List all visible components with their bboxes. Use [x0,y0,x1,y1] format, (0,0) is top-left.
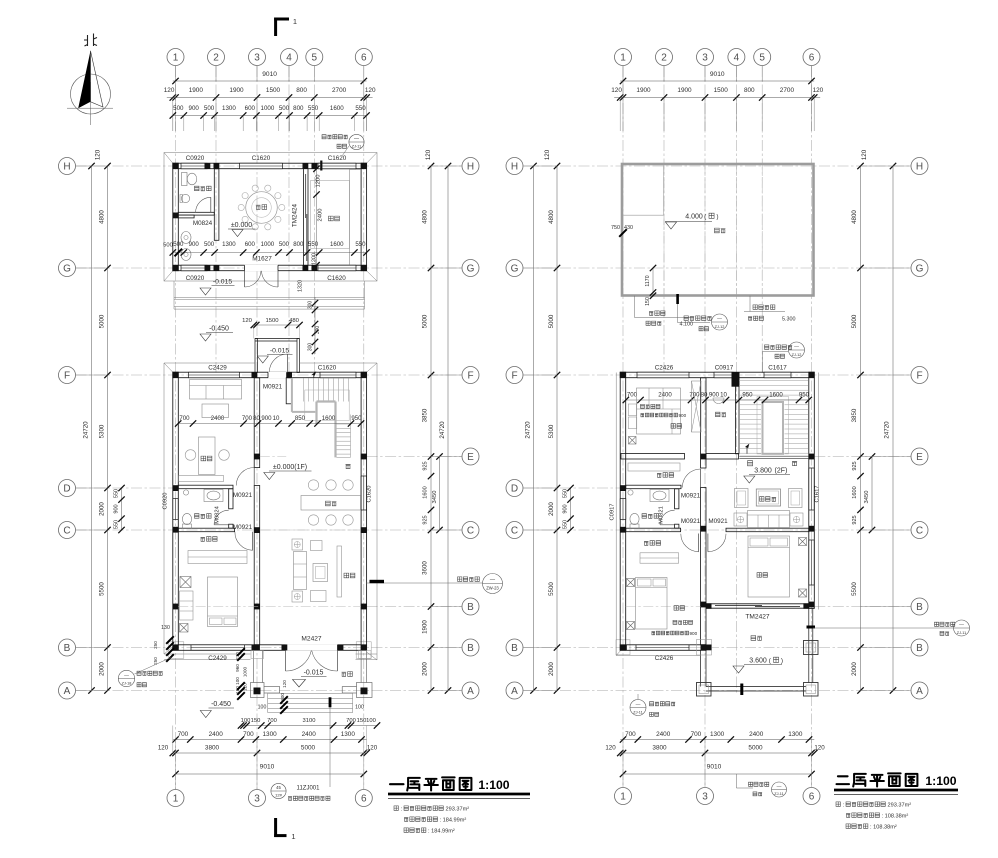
svg-text:6: 6 [361,793,367,804]
svg-text:—: — [777,785,782,790]
svg-text:: 108.38m²: : 108.38m² [870,825,897,831]
svg-text:2400: 2400 [211,415,225,422]
svg-text:B: B [467,602,474,613]
svg-text:1300: 1300 [341,731,356,738]
svg-text:B: B [467,643,474,654]
svg-text:2000: 2000 [422,662,429,676]
svg-text:3800: 3800 [205,745,220,752]
svg-text:M0824: M0824 [193,220,213,227]
svg-text:2400: 2400 [209,731,224,738]
svg-text:2000: 2000 [548,662,555,676]
svg-text:1300: 1300 [788,731,803,738]
svg-text:—: — [794,345,799,350]
svg-text:550: 550 [563,489,569,498]
svg-text:700: 700 [179,415,190,422]
svg-text:2000: 2000 [99,662,106,676]
svg-text:1600: 1600 [322,415,336,422]
svg-text:293.37m²: 293.37m² [446,807,470,813]
svg-text:1000: 1000 [261,241,275,248]
svg-text:700: 700 [691,731,702,738]
svg-text:24720: 24720 [525,421,532,439]
svg-text:: 184.99m²: : 184.99m² [428,829,455,835]
svg-text:1:100: 1:100 [478,778,509,792]
svg-text:ZJ-11: ZJ-11 [633,710,642,714]
svg-text:1000: 1000 [243,666,248,677]
svg-text:G: G [467,263,475,274]
svg-text:A: A [467,686,474,697]
svg-text:800: 800 [293,241,304,248]
svg-text:1900: 1900 [189,87,204,94]
svg-text:M2427: M2427 [301,636,321,643]
svg-text:M0921: M0921 [233,492,253,499]
svg-text:ZJ-12: ZJ-12 [715,325,725,329]
svg-text:120: 120 [861,149,868,160]
svg-text:ZJ-11: ZJ-11 [352,145,361,149]
svg-text:120: 120 [282,680,287,688]
svg-text:120: 120 [95,149,102,160]
svg-text:11ZJ001: 11ZJ001 [297,786,321,792]
svg-text:2400: 2400 [318,209,324,222]
svg-text:2400: 2400 [302,731,317,738]
svg-text:E: E [916,452,923,463]
svg-text:925: 925 [852,515,858,524]
svg-text:1: 1 [173,793,179,804]
svg-text:250: 250 [153,641,158,649]
svg-text:150: 150 [251,718,261,724]
svg-text:150: 150 [645,297,651,306]
svg-text:ZJ-11: ZJ-11 [774,792,783,796]
svg-text:C2429: C2429 [208,655,227,662]
svg-text:1900: 1900 [677,87,692,94]
svg-text:-0.450: -0.450 [211,701,231,708]
svg-text:C1620: C1620 [318,364,337,371]
svg-text:F: F [511,370,517,381]
svg-text:C1617: C1617 [768,364,787,371]
svg-text:3800: 3800 [652,745,667,752]
svg-text:9010: 9010 [260,764,275,771]
svg-text:120: 120 [164,87,175,94]
svg-text:2: 2 [661,52,667,63]
svg-text:ZW-23: ZW-23 [486,586,499,591]
svg-text:-0.015: -0.015 [270,348,289,355]
svg-text:550: 550 [308,105,319,112]
svg-text:3.600: 3.600 [749,658,767,665]
svg-text:C: C [511,525,518,536]
svg-text:9010: 9010 [262,71,277,78]
svg-text:1900: 1900 [422,620,429,634]
svg-text:—: — [959,623,964,628]
svg-text:ZJ-11: ZJ-11 [957,631,966,635]
svg-text:2: 2 [213,52,219,63]
svg-text:F: F [467,370,473,381]
svg-text:G: G [916,263,924,274]
svg-text:TM2427: TM2427 [745,614,770,621]
svg-text:5500: 5500 [851,582,858,596]
svg-text:700: 700 [625,731,636,738]
svg-text:M0921: M0921 [681,518,701,525]
svg-text:): ) [716,214,718,221]
svg-text:900: 900 [709,391,720,398]
svg-text:960: 960 [235,664,240,672]
svg-text:500: 500 [204,105,215,112]
svg-text:C1617: C1617 [815,485,821,502]
svg-text:—: — [717,317,722,322]
svg-text:12#: 12# [275,793,282,798]
svg-text:700: 700 [242,415,253,422]
svg-text:800: 800 [293,105,304,112]
svg-text:1500: 1500 [266,87,281,94]
svg-text:1600: 1600 [852,486,858,498]
svg-text:900: 900 [189,241,200,248]
svg-text:: 108.38m²: : 108.38m² [882,814,909,820]
svg-text:H: H [467,161,474,172]
svg-text:700: 700 [267,718,277,724]
svg-text:1: 1 [173,52,179,63]
svg-text:D: D [63,483,70,494]
svg-text:1:100: 1:100 [925,774,956,788]
svg-text:1300: 1300 [222,241,236,248]
svg-text:±0.000(1F): ±0.000(1F) [273,464,307,471]
svg-text:M0921: M0921 [708,518,728,525]
svg-text:): ) [781,658,783,665]
svg-text:550: 550 [563,520,569,529]
svg-text:E: E [467,452,474,463]
svg-text:M0921: M0921 [263,384,283,391]
svg-text:700: 700 [243,731,254,738]
svg-text:550: 550 [114,489,120,498]
svg-text:800: 800 [296,87,307,94]
svg-text:1900: 1900 [229,87,244,94]
svg-text:-0.015: -0.015 [213,279,232,286]
svg-text:550: 550 [355,105,366,112]
svg-text:1: 1 [620,52,626,63]
svg-text:100: 100 [366,718,376,724]
svg-text:850: 850 [295,415,306,422]
svg-text:C1620: C1620 [328,155,347,162]
svg-text:500: 500 [204,241,215,248]
svg-text:24720: 24720 [439,421,446,439]
svg-text:C: C [916,525,923,536]
svg-text:6: 6 [361,52,367,63]
svg-text:550: 550 [355,241,366,248]
svg-text:ZJ-18: ZJ-18 [122,681,132,685]
svg-text:1500: 1500 [265,318,279,324]
svg-text:900: 900 [261,415,272,422]
svg-text:700: 700 [627,391,638,398]
svg-text:C2426: C2426 [655,655,674,662]
svg-text:5500: 5500 [548,582,555,596]
svg-text:5300: 5300 [548,424,555,438]
svg-text:2000: 2000 [548,502,555,516]
svg-text:900: 900 [690,631,698,636]
svg-text:750: 750 [611,225,620,231]
svg-text:9010: 9010 [707,764,722,771]
svg-text:950: 950 [351,415,362,422]
svg-text:C1620: C1620 [327,275,346,282]
svg-text:C0917: C0917 [610,503,616,520]
svg-text:H: H [511,161,518,172]
svg-text:800: 800 [744,87,755,94]
svg-text:5000: 5000 [548,314,555,328]
svg-text:24720: 24720 [884,421,891,439]
svg-text:C1620: C1620 [252,155,271,162]
svg-text:3100: 3100 [303,718,316,724]
svg-text:G: G [63,263,71,274]
svg-text:900: 900 [189,105,200,112]
svg-text:—: — [636,703,641,708]
svg-text:M0921: M0921 [233,524,253,531]
svg-text:3: 3 [702,791,708,802]
svg-text:80: 80 [701,391,708,398]
svg-text:5300: 5300 [99,424,106,438]
svg-text:H: H [63,161,70,172]
svg-text:—: — [354,136,359,142]
svg-text:150: 150 [357,718,367,724]
svg-text:2400: 2400 [749,731,764,738]
svg-text:1320: 1320 [298,280,304,292]
svg-text:4800: 4800 [422,210,429,224]
svg-text:C0920: C0920 [186,155,205,162]
svg-text:130: 130 [161,625,170,631]
svg-text:1300: 1300 [262,731,277,738]
svg-text:—: — [490,577,496,583]
svg-text:D: D [511,483,518,494]
svg-text:C0917: C0917 [715,364,734,371]
svg-text:550: 550 [114,520,120,529]
svg-text:500: 500 [279,105,290,112]
svg-text:4: 4 [734,52,740,63]
svg-text:2000: 2000 [851,662,858,676]
svg-text:3: 3 [254,52,260,63]
svg-text:120: 120 [605,745,616,752]
svg-text:A: A [511,686,518,697]
svg-text:120: 120 [158,745,169,752]
svg-text:1: 1 [293,17,297,26]
svg-text:900: 900 [679,413,687,418]
svg-text:120: 120 [814,745,825,752]
svg-text:120: 120 [425,149,432,160]
svg-text:C0920: C0920 [163,492,169,509]
svg-text:C2429: C2429 [208,364,227,371]
svg-text:120: 120 [813,87,824,94]
svg-text:500: 500 [173,241,184,248]
svg-text:5000: 5000 [301,745,316,752]
svg-text:2400: 2400 [656,731,671,738]
svg-text:950: 950 [742,391,753,398]
svg-text:2700: 2700 [780,87,795,94]
svg-text:M1627: M1627 [252,256,272,263]
svg-text:900: 900 [563,504,569,513]
svg-text:2400: 2400 [658,391,672,398]
svg-text:±0.000: ±0.000 [231,222,252,229]
svg-text:C: C [63,525,70,536]
svg-text:TM2424: TM2424 [292,203,299,227]
svg-text:-0.450: -0.450 [209,326,229,333]
svg-text:3850: 3850 [422,408,429,422]
svg-text:B: B [916,602,923,613]
svg-text:925: 925 [852,461,858,470]
svg-text:2000: 2000 [99,502,106,516]
svg-text:700: 700 [178,731,189,738]
svg-text:1900: 1900 [636,87,651,94]
svg-text:3.800: 3.800 [754,468,772,475]
svg-text:1: 1 [291,832,295,841]
svg-text:500: 500 [279,241,290,248]
svg-text:3600: 3600 [422,561,429,575]
svg-text:4: 4 [286,52,292,63]
svg-text:C2426: C2426 [655,364,674,371]
svg-text:M0921: M0921 [681,493,701,500]
svg-text:5500: 5500 [99,582,106,596]
svg-text:5.300: 5.300 [782,317,796,323]
svg-text:: 184.99m²: : 184.99m² [440,818,467,824]
svg-text:6: 6 [809,52,815,63]
svg-text:300: 300 [315,326,321,335]
svg-text:C1620: C1620 [367,485,373,502]
svg-text:950: 950 [799,391,810,398]
svg-text:700: 700 [346,718,356,724]
svg-text:B: B [511,643,518,654]
svg-text:1500: 1500 [714,87,729,94]
svg-text:293.37m²: 293.37m² [888,803,912,809]
svg-text:500: 500 [173,105,184,112]
svg-text:4800: 4800 [851,210,858,224]
svg-text:550: 550 [308,241,319,248]
svg-text:4800: 4800 [99,210,106,224]
svg-text:—: — [124,673,129,678]
svg-text:120: 120 [544,149,551,160]
svg-text:9010: 9010 [710,71,725,78]
svg-text:B: B [64,643,71,654]
svg-text:120: 120 [367,745,378,752]
svg-text:5000: 5000 [748,745,763,752]
svg-text:5: 5 [759,52,765,63]
svg-text:M0821: M0821 [659,506,665,524]
svg-text:120: 120 [611,87,622,94]
svg-text:1170: 1170 [645,275,651,286]
svg-text:1000: 1000 [261,105,275,112]
svg-text:A: A [916,686,923,697]
svg-text:A: A [64,686,71,697]
svg-text:5: 5 [312,52,318,63]
svg-text:3: 3 [254,793,260,804]
svg-text:H: H [916,161,923,172]
svg-text:B: B [916,643,923,654]
svg-text:120: 120 [365,87,376,94]
svg-text:5000: 5000 [422,314,429,328]
svg-text:1: 1 [620,791,626,802]
svg-text:4800: 4800 [548,210,555,224]
svg-text:4.000: 4.000 [685,214,703,221]
svg-text:3450: 3450 [432,491,438,504]
svg-text:80: 80 [253,415,260,422]
svg-text:3850: 3850 [851,408,858,422]
svg-text:5000: 5000 [99,314,106,328]
svg-text:1300: 1300 [710,731,725,738]
svg-text:24720: 24720 [83,421,90,439]
svg-text:3: 3 [702,52,708,63]
svg-text:100: 100 [241,718,251,724]
svg-text:1600: 1600 [769,391,783,398]
svg-text:1600: 1600 [423,486,429,498]
svg-text:ZJ-12: ZJ-12 [792,353,802,357]
svg-text:1300: 1300 [222,105,236,112]
svg-text:300: 300 [308,343,314,352]
svg-text:C0920: C0920 [186,275,205,282]
svg-text:(2F): (2F) [775,468,788,475]
svg-text:925: 925 [423,461,429,470]
svg-text:300: 300 [308,301,314,310]
svg-text:10: 10 [273,415,280,422]
svg-text:100: 100 [235,677,240,685]
svg-text:925: 925 [423,515,429,524]
svg-text:G: G [511,263,519,274]
svg-text:F: F [64,370,70,381]
svg-text:5000: 5000 [851,314,858,328]
svg-text:1200: 1200 [316,175,322,188]
svg-text:600: 600 [245,241,256,248]
svg-text:1600: 1600 [330,241,344,248]
svg-text:C: C [467,525,474,536]
svg-text:600: 600 [245,105,256,112]
svg-text:1600: 1600 [330,105,344,112]
svg-text:6: 6 [809,791,815,802]
svg-text:45: 45 [276,785,281,790]
svg-text:900: 900 [114,504,120,513]
svg-text:M0824: M0824 [215,505,221,524]
svg-text:100: 100 [258,705,267,711]
svg-text:-0.015: -0.015 [304,670,324,677]
svg-text:500: 500 [163,243,173,249]
svg-text:480: 480 [289,318,300,324]
svg-text:10: 10 [720,391,727,398]
svg-text:2700: 2700 [332,87,347,94]
svg-text:F: F [916,370,922,381]
svg-text:100: 100 [355,705,364,711]
svg-text:120: 120 [242,318,253,324]
svg-text:3450: 3450 [864,491,870,504]
